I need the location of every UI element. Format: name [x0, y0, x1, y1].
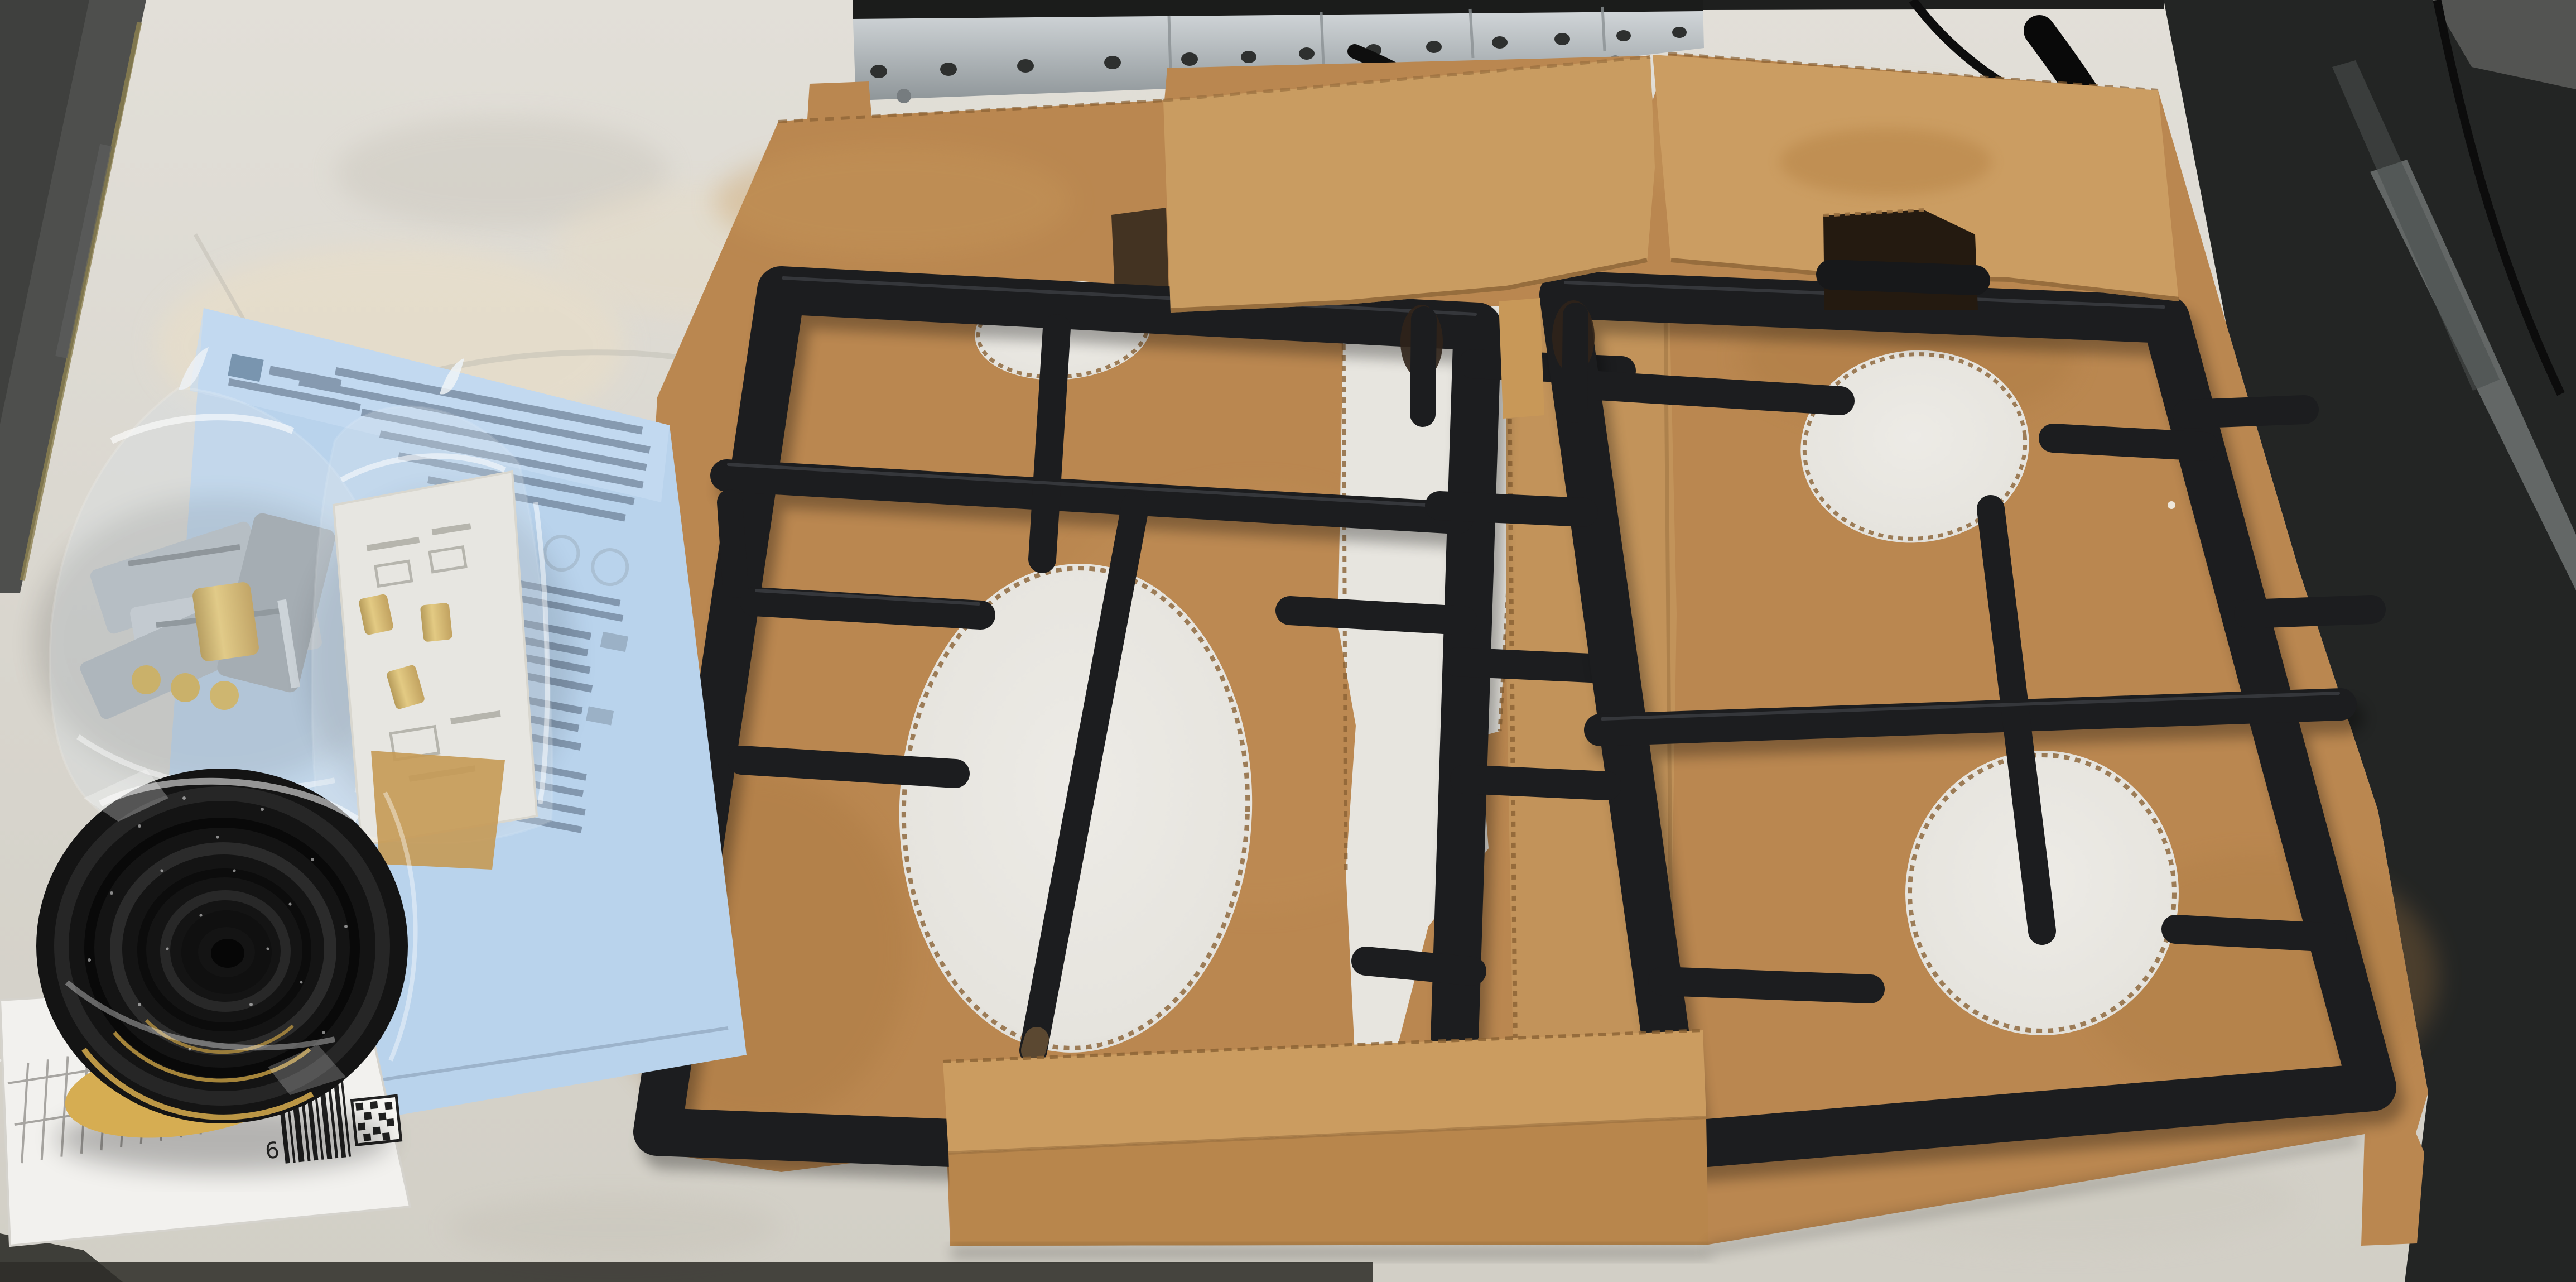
table-front-edge	[0, 1262, 1373, 1282]
photo-canvas: 6	[0, 0, 2576, 1282]
grate-finial-right	[1575, 315, 1576, 410]
casting-mark	[1033, 1039, 1037, 1050]
flap-cut-window	[1823, 210, 1978, 310]
frame-through-window	[1831, 275, 1975, 280]
grate-left-rib-upper	[1042, 328, 1057, 559]
grate-finial-left	[1423, 319, 1424, 414]
scene-svg: 6	[0, 0, 2576, 1282]
grate-left-foot	[730, 502, 735, 585]
divider-tab	[1499, 298, 1544, 419]
